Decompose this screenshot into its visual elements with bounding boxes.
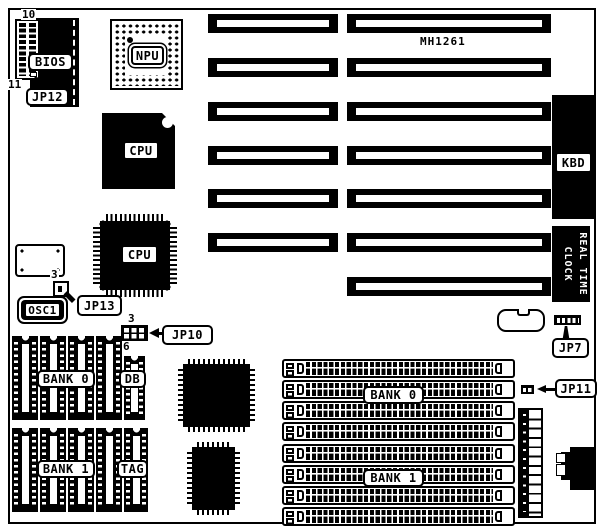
simm-latch [495, 405, 502, 416]
jp12-label: JP12 [26, 88, 69, 106]
crystal-notch [517, 309, 530, 316]
jp7-label: JP7 [552, 338, 589, 358]
logic-chip [187, 442, 240, 515]
npu-pin1-dot [127, 37, 133, 43]
osc1-body: OSC1 [21, 300, 64, 320]
crystal-outline [497, 309, 545, 332]
expansion-slot [208, 189, 338, 208]
simm-latch [495, 448, 502, 459]
db-label: DB [119, 370, 146, 388]
cpu-pga-label: CPU [124, 142, 158, 159]
dip-bank0-label: BANK 0 [37, 370, 95, 388]
jp11-jumper [521, 385, 534, 394]
bios-label: BIOS [28, 53, 73, 71]
rtc-label: REAL TIME CLOCK [552, 226, 590, 302]
bios-dashed-line [73, 20, 75, 105]
simm-slot [282, 422, 515, 441]
jp12-pin11-number: 11 [7, 79, 22, 90]
expansion-slot [347, 58, 551, 77]
rtc-label-line2: CLOCK [560, 226, 575, 302]
simm-latch [297, 426, 304, 437]
power-connector [518, 408, 543, 518]
simm-latch [495, 469, 502, 480]
simm-slot [282, 359, 515, 378]
expansion-slot [347, 233, 551, 252]
simm-slot [282, 507, 515, 526]
jp10-jumper [121, 325, 148, 341]
jp7-pin-header [554, 315, 581, 325]
board-model: MH1261 [420, 35, 466, 48]
simm-slot [282, 444, 515, 463]
expansion-slot [347, 277, 551, 296]
rtc-label-line1: REAL TIME [575, 226, 590, 302]
logic-chip [178, 359, 255, 432]
simm-latch [495, 363, 502, 374]
jp13-label: JP13 [77, 295, 122, 316]
dip-socket-db [124, 356, 145, 420]
jp10-pin3-number: 3 [127, 313, 136, 324]
npu-label: NPU [131, 46, 164, 65]
osc1-label: OSC1 [25, 303, 60, 317]
simm-latch [495, 426, 502, 437]
rtc-chip: REAL TIME CLOCK [552, 226, 590, 302]
cpu-chip-qfp: CPU [92, 213, 178, 298]
dip-socket [12, 428, 38, 512]
expansion-slot [208, 14, 338, 33]
npu-socket: NPU [110, 19, 183, 90]
kbd-connector: KBD [552, 95, 596, 219]
cpu-pin1-marker [162, 117, 173, 128]
jp10-label: JP10 [162, 325, 213, 345]
simm-slot [282, 486, 515, 505]
expansion-slot [208, 146, 338, 165]
expansion-slot [208, 58, 338, 77]
simm-latch [297, 469, 304, 480]
expansion-slot [347, 189, 551, 208]
simm-latch [495, 511, 502, 522]
cpu-qfp-label: CPU [122, 246, 157, 263]
expansion-slot [208, 102, 338, 121]
simm-latch [297, 363, 304, 374]
din-connector-pin [556, 453, 566, 463]
simm-latch [495, 384, 502, 395]
dip-bank1-label: BANK 1 [37, 460, 95, 478]
simm-latch [297, 384, 304, 395]
simm-bank1-label: BANK 1 [363, 469, 424, 487]
osc1-oscillator: OSC1 [17, 296, 68, 324]
cpu-chip-pga: CPU [102, 113, 175, 189]
expansion-slot [347, 14, 551, 33]
simm-latch [297, 405, 304, 416]
dip-socket [12, 336, 38, 420]
jp10-pin6-number: 6 [122, 341, 131, 352]
expansion-slot [347, 102, 551, 121]
jp11-label: JP11 [555, 379, 597, 398]
simm-bank0-label: BANK 0 [363, 386, 424, 404]
simm-latch [297, 448, 304, 459]
tag-label: TAG [117, 460, 148, 478]
jp12-pin10-number: 10 [21, 9, 36, 20]
simm-latch [297, 511, 304, 522]
simm-latch [297, 490, 304, 501]
expansion-slot [347, 146, 551, 165]
motherboard-diagram: MH1261 10 11 BIOS JP12 NPU CPU CPU 3 [0, 0, 603, 531]
din-connector-pin [556, 464, 566, 476]
jp13-pin3-number: 3 [50, 269, 59, 280]
din-connector-body [570, 447, 596, 490]
expansion-slot [208, 233, 338, 252]
simm-latch [495, 490, 502, 501]
kbd-label: KBD [556, 153, 591, 172]
